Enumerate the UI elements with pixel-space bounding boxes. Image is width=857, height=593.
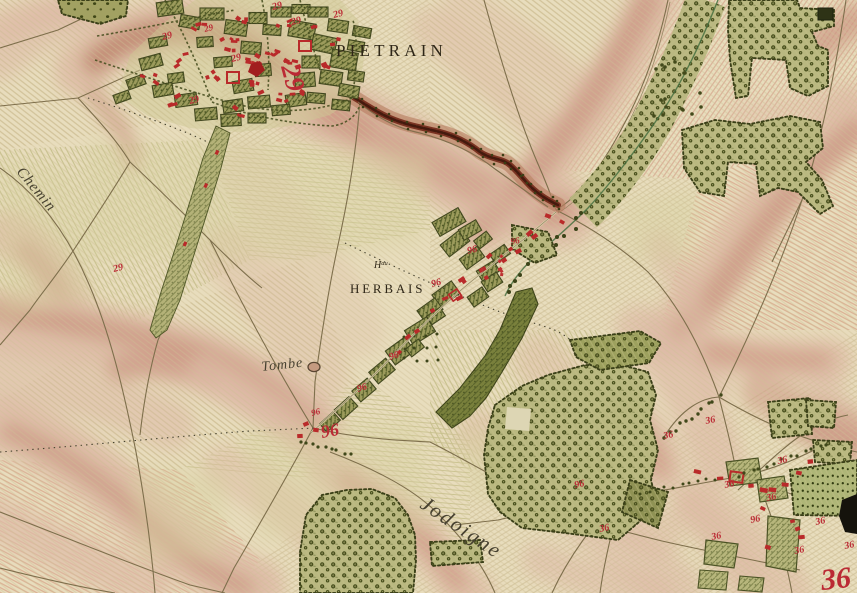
svg-text:36: 36 — [842, 539, 855, 552]
svg-text:36: 36 — [703, 414, 716, 427]
svg-text:96: 96 — [319, 419, 340, 442]
svg-text:HERBAIS: HERBAIS — [350, 281, 425, 296]
svg-text:36: 36 — [722, 478, 735, 491]
svg-text:36: 36 — [792, 544, 805, 557]
svg-text:36: 36 — [818, 561, 852, 593]
svg-text:36: 36 — [764, 491, 777, 504]
svg-text:36: 36 — [775, 454, 788, 467]
svg-text:36: 36 — [813, 515, 826, 528]
svg-text:36: 36 — [709, 530, 722, 543]
svg-text:36: 36 — [597, 522, 610, 535]
svg-text:PIETRAIN: PIETRAIN — [336, 41, 447, 60]
svg-text:36: 36 — [661, 429, 674, 442]
